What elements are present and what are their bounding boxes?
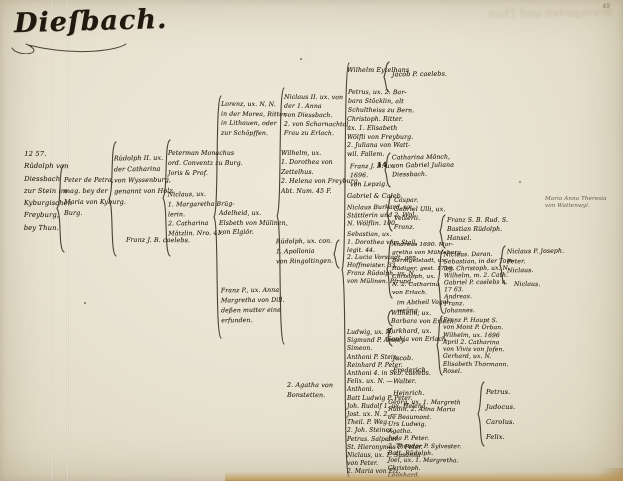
paper-crease	[51, 0, 54, 481]
page-title: Dieſbach.	[14, 4, 168, 39]
paper-crease	[66, 0, 69, 481]
ink-speck	[519, 181, 521, 183]
page-bottom-edge	[225, 472, 623, 481]
entry-jacob-frederich-list: Jacob. Frederich. Walter. Heinrich.	[393, 353, 429, 399]
entry-niclaus-joseph-list: Niclaus P. Joseph. Peter. Niclaus.	[507, 247, 565, 276]
page-corner-edge	[593, 468, 623, 481]
entry-niclaus-ii: Niclaus II. ux. von der 1. Anna von Dies…	[284, 93, 351, 138]
entry-lorenz: Lorenz, ux. N. N. in der Morea, Ritter i…	[221, 100, 286, 138]
entry-peterman-monachus: Peterman Monachus ord. Conventz zu Burg.…	[168, 149, 243, 179]
ink-speck	[300, 58, 302, 60]
entry-petrus-stoecklin: Petrus, ux. 2. Bar- bara Stöcklin, alt S…	[348, 88, 415, 115]
entry-marginal-note: Maria Anna Theresia von Wattenwyl.	[545, 196, 607, 211]
entry-rudolph-ringoltingen: Rüdolph, ux. con. 1. Apollonia von Ringo…	[276, 237, 334, 268]
entry-adelheid-elgioer: Adelheid, ux. Elsbeth von Mülinen, von E…	[219, 209, 288, 238]
entry-number-14: 14	[377, 160, 387, 170]
ink-speck	[84, 302, 86, 304]
entry-niclaus-sebastian-list: Niclaus. Daran. Sebastian, in der Tom- l…	[444, 251, 515, 315]
ink-showthrough: Bremgarten und Thun	[452, 6, 612, 22]
entry-petrus-judocus-list: Petrus. Judocus. Carolus. Felix.	[486, 385, 515, 445]
entry-franz-lepzig: Franz J. B. ux. 1696. von Lepzig.	[350, 162, 396, 190]
manuscript-page: Bremgarten und Thun 49 Dieſbach. 12 57. …	[0, 0, 623, 481]
entry-caspar-group: Caspar. Gabriel Ulli, ux. Velserli. Fran…	[394, 196, 446, 232]
entry-niclaus-single: Niclaus.	[514, 281, 541, 290]
entry-georg-descendants-list: Georg, ux. 1. Margreth Rüdin. 2. Anna Ma…	[388, 399, 462, 480]
entry-burkhard-sophia-von-erlach: Burkhard, ux. Sophia von Erlach.	[387, 328, 448, 345]
page-number: 49	[602, 3, 610, 10]
entry-jacob-caelebs: Jacob P. caelebs.	[392, 70, 447, 79]
entry-catharina-moench: Catharina Mönch, von Gabriel Juliana Die…	[392, 154, 454, 180]
entry-agatha-bonstetten: 2. Agatha von Bonstetten.	[287, 380, 333, 400]
entry-rudolph-ii: Rüdolph II. ux. der Catharina von Wyssen…	[114, 153, 175, 198]
entry-franz-rud-group: Franz S. B. Rud. S. Bastian Rüdolph. Han…	[447, 216, 508, 243]
entry-franz-haupt-group: Franz P. Haupt S. von Mont P. Orban. Wil…	[443, 317, 509, 376]
entry-franz-von-dill: Franz P., ux. Anna Margretha von Dill. d…	[221, 286, 285, 327]
